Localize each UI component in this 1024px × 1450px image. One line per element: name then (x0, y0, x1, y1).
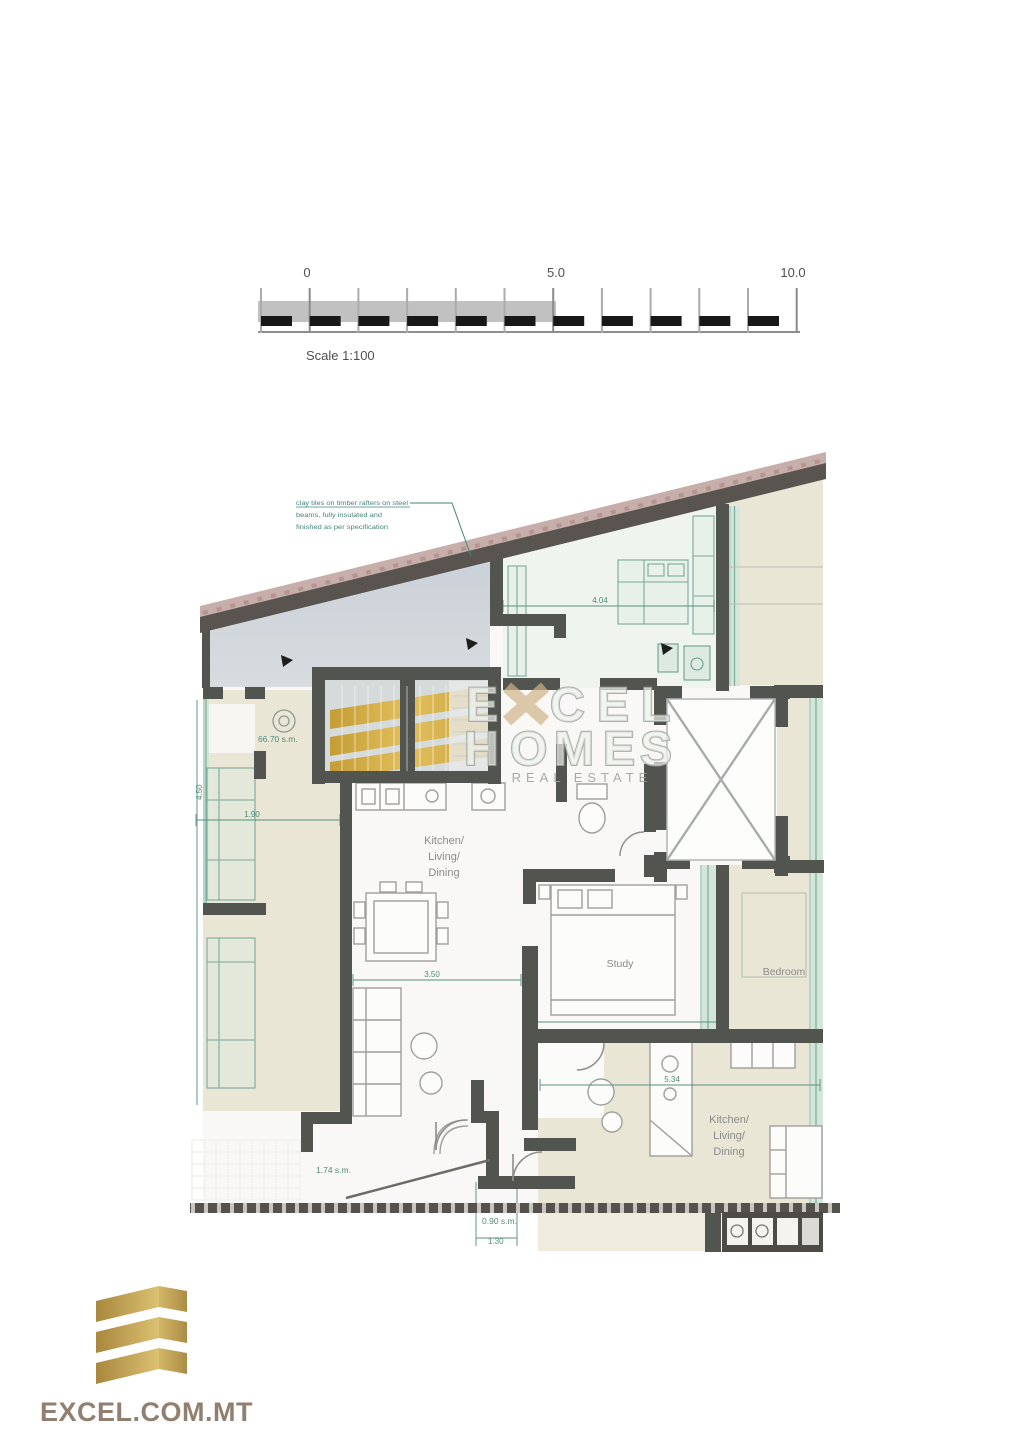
svg-text:Dining: Dining (713, 1146, 744, 1158)
svg-text:Bedroom: Bedroom (763, 966, 806, 978)
svg-text:5.34: 5.34 (664, 1075, 680, 1084)
svg-text:clay tiles on timber rafters o: clay tiles on timber rafters on steel (296, 501, 408, 507)
svg-text:beams, fully insulated and: beams, fully insulated and (296, 513, 382, 519)
svg-text:M: M (554, 723, 594, 776)
svg-text:E: E (603, 723, 635, 776)
svg-text:5.0: 5.0 (547, 265, 565, 280)
svg-text:Living/: Living/ (713, 1130, 746, 1142)
svg-text:Living/: Living/ (428, 851, 461, 863)
svg-text:Kitchen/: Kitchen/ (424, 835, 465, 847)
svg-text:REAL ESTATE: REAL ESTATE (512, 770, 653, 785)
svg-text:4.50: 4.50 (195, 784, 204, 800)
svg-text:Dining: Dining (428, 867, 459, 879)
svg-text:Kitchen/: Kitchen/ (709, 1114, 750, 1126)
svg-text:10.0: 10.0 (780, 265, 805, 280)
svg-text:finished as per specification: finished as per specification (296, 525, 388, 531)
svg-text:Study: Study (607, 958, 635, 970)
svg-text:O: O (510, 723, 547, 776)
svg-text:EXCEL.COM.MT: EXCEL.COM.MT (40, 1397, 253, 1427)
svg-text:H: H (464, 723, 499, 776)
svg-text:1.30: 1.30 (488, 1237, 504, 1246)
svg-text:66.70 s.m.: 66.70 s.m. (258, 734, 298, 744)
svg-text:3.50: 3.50 (424, 970, 440, 979)
svg-text:0.90 s.m.: 0.90 s.m. (482, 1216, 517, 1226)
svg-text:Scale 1:100: Scale 1:100 (306, 348, 375, 363)
svg-text:0: 0 (303, 265, 310, 280)
svg-text:1.74 s.m.: 1.74 s.m. (316, 1165, 351, 1175)
svg-text:S: S (640, 723, 672, 776)
svg-text:4.04: 4.04 (592, 596, 608, 605)
svg-text:1.90: 1.90 (244, 810, 260, 819)
